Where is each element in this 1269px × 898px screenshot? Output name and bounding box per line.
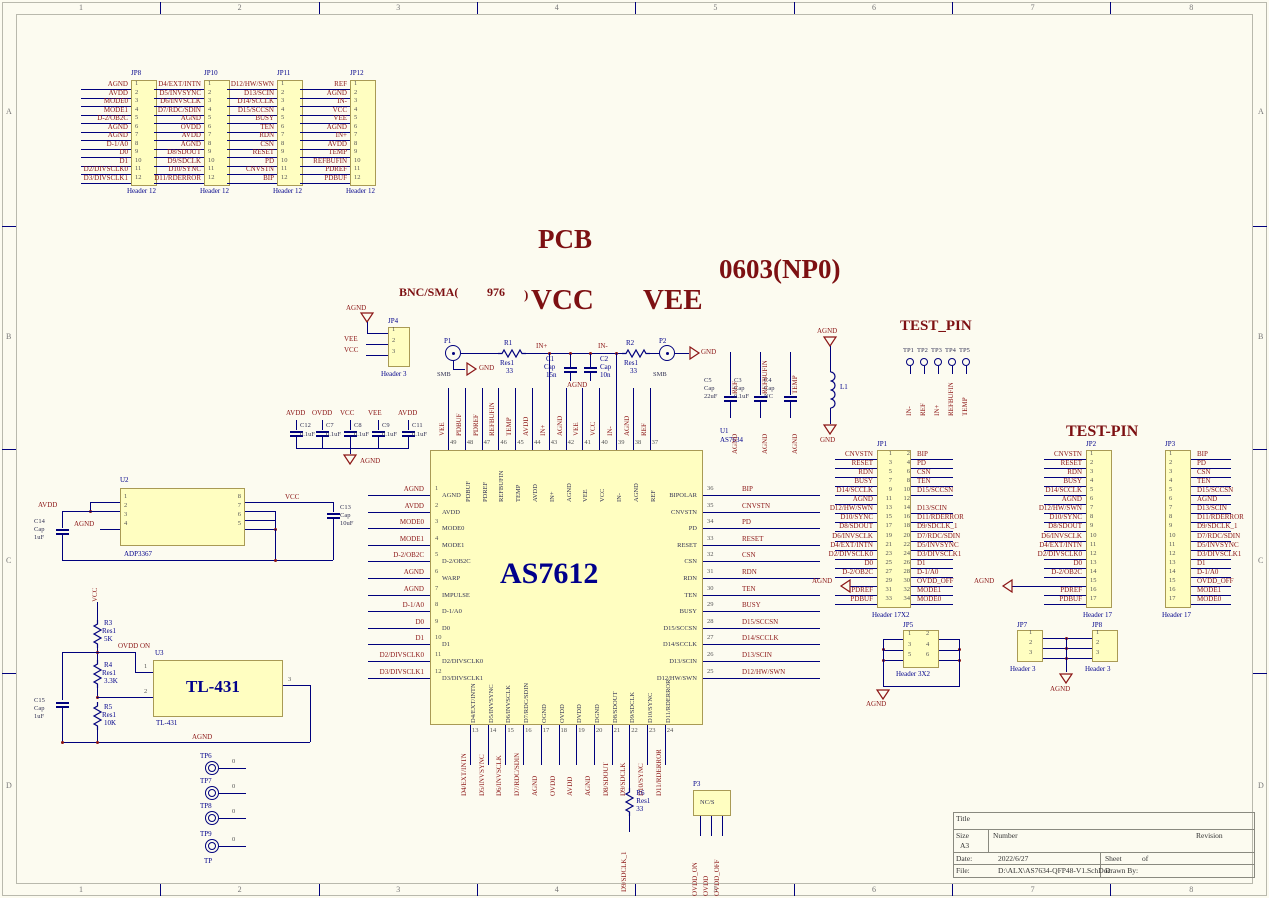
bnc-connector-p1 — [452, 352, 455, 355]
pin-wire — [910, 366, 911, 374]
net-label: D9/SDCLK — [131, 158, 201, 165]
testpoint-designator: TP7 — [200, 778, 212, 785]
pin-number: 9 — [1090, 523, 1093, 530]
pin-name: D13/SCIN — [641, 659, 697, 666]
net-label: IN+ — [934, 376, 941, 416]
pin-name: TEMP — [516, 454, 523, 502]
net-label: D5/INVSYNC — [479, 741, 486, 796]
net-label: D-1/A0 — [364, 602, 424, 609]
pin-wire — [711, 816, 712, 836]
net-label: OVDD ON — [118, 643, 150, 650]
capacitor-designator: C14 — [34, 519, 45, 526]
pin-number: 17 — [881, 523, 892, 530]
connector-type: SMB — [437, 372, 451, 379]
pin-number: 5 — [1169, 487, 1172, 494]
pin-wire — [368, 545, 430, 546]
pin-number: 5 — [1090, 487, 1093, 494]
net-label: D11/RDERROR — [656, 741, 663, 796]
resistor-value: 33 — [630, 368, 637, 375]
net-label: IN- — [598, 343, 608, 350]
pin-number: 1 — [1096, 630, 1099, 637]
net-label: D7/RDC/SDIN — [1197, 533, 1240, 540]
pin-number: 19 — [578, 728, 585, 735]
zone-tick — [319, 884, 320, 896]
vcc-note: VCC — [531, 284, 594, 317]
pin-number: 10 — [1169, 533, 1176, 540]
pin-number: 13 — [472, 728, 479, 735]
testpoint-tp1[interactable] — [906, 358, 914, 366]
capacitor-designator: C7 — [326, 423, 334, 430]
pin-wire — [81, 183, 131, 184]
pin-number: 10 — [899, 487, 910, 494]
pin-wire — [465, 388, 466, 450]
net-label: IN+ — [540, 392, 547, 436]
ic-type: TL-431 — [156, 720, 177, 727]
agnd-symbol[interactable] — [1060, 674, 1072, 683]
pin-number: 1 — [881, 451, 892, 458]
zone-tick — [952, 2, 953, 14]
net-label: VCC — [340, 410, 354, 417]
wire — [378, 420, 379, 430]
pin-name: D15/SCCSN — [641, 626, 697, 633]
resistor-r1[interactable] — [498, 349, 526, 358]
capacitor-value: 0.1uF — [412, 432, 427, 439]
pin-number: 8 — [1169, 514, 1172, 521]
header-designator: JP11 — [277, 70, 290, 77]
net-label: REFBUFIN — [489, 392, 496, 436]
pin-wire — [368, 644, 430, 645]
wire — [830, 346, 831, 372]
bnc-sma-note: BNC/SMA( — [399, 285, 458, 300]
net-label: AVDD — [38, 502, 57, 509]
pin-number: 3 — [908, 642, 911, 649]
net-label: AGND — [866, 701, 886, 708]
net-label: AGND — [364, 569, 424, 576]
inductor-l1[interactable] — [826, 372, 835, 408]
pin-name: PDREF — [483, 454, 490, 502]
net-label: CSN — [742, 552, 756, 559]
pin-number: 43 — [551, 440, 558, 447]
zone-tick — [477, 2, 478, 14]
pin-number: 5 — [435, 552, 438, 559]
titleblock-revision-label: Revision — [1196, 831, 1223, 840]
sheet-zone-label: 8 — [1189, 4, 1193, 12]
wire — [296, 420, 297, 430]
pin-wire — [448, 388, 449, 450]
pin-wire — [245, 520, 275, 521]
net-label: D12/HW/SWN — [742, 669, 785, 676]
net-label: D6/INVSCLK — [496, 741, 503, 796]
bnc-connector-p2 — [666, 352, 669, 355]
net-label: VEE — [573, 392, 580, 436]
test-pin-title: TEST_PIN — [900, 318, 972, 335]
net-label: AVDD — [567, 741, 574, 796]
resistor-r3[interactable] — [93, 620, 102, 648]
pin-wire — [367, 333, 388, 334]
gnd-symbol[interactable] — [467, 363, 476, 375]
wire — [62, 652, 97, 653]
pin-number: 6 — [230, 512, 241, 519]
pin-number: 36 — [707, 486, 714, 493]
agnd-symbol[interactable] — [344, 455, 356, 464]
pin-wire — [1043, 638, 1092, 639]
sheet-zone-label: 1 — [79, 886, 83, 894]
testpoint-tp3[interactable] — [934, 358, 942, 366]
ic-type: ADP3367 — [124, 551, 152, 558]
pin-number: 20 — [899, 533, 910, 540]
net-label: TEMP — [506, 392, 513, 436]
pin-wire — [599, 388, 600, 450]
wire — [62, 708, 63, 742]
pin-number: 12 — [435, 669, 442, 676]
pin-wire — [488, 725, 489, 765]
net-label: D11/RDERROR — [1197, 514, 1244, 521]
net-label: AVDD — [523, 392, 530, 436]
pin-wire — [939, 660, 959, 661]
pin-wire — [576, 725, 577, 765]
net-label: D8/SDOUT — [603, 741, 610, 796]
wire — [296, 437, 297, 448]
pin-number: 2 — [124, 503, 127, 510]
pin-number: 3 — [435, 519, 438, 526]
capacitor-value: 1uF — [34, 714, 44, 721]
net-label: PD — [1197, 460, 1206, 467]
header-designator: JP10 — [204, 70, 218, 77]
header-designator: JP5 — [903, 622, 913, 629]
pin-number: 6 — [1169, 496, 1172, 503]
pin-wire — [368, 528, 430, 529]
pin-number: 10 — [354, 158, 361, 165]
wire — [97, 652, 135, 653]
net-label: AGND — [1050, 686, 1070, 693]
pin-wire — [1191, 604, 1231, 605]
capacitor-value: 15n — [546, 372, 557, 379]
net-label: AGND — [58, 81, 128, 88]
ic-designator: U1 — [720, 428, 729, 435]
connector-designator: P3 — [693, 781, 700, 788]
net-label: RDN — [1010, 469, 1082, 476]
pin-wire — [939, 650, 959, 651]
zone-tick — [1253, 449, 1267, 450]
net-label: AVDD — [286, 410, 305, 417]
capacitor-designator: C3 — [734, 378, 742, 385]
testpoint-tp5[interactable] — [962, 358, 970, 366]
net-label: D10/SYNC — [131, 166, 201, 173]
pin-number: 39 — [618, 440, 625, 447]
zone-tick — [2, 449, 16, 450]
pin-number: 1 — [392, 327, 395, 334]
net-label: MODE0 — [58, 98, 128, 105]
net-label: IN- — [277, 98, 347, 105]
net-label: D8/SDOUT — [803, 523, 873, 530]
net-label: D3/DIVSCLK1 — [58, 175, 128, 182]
pin-wire — [368, 561, 430, 562]
header-type: Header 3X2 — [896, 671, 930, 678]
pin-number: 31 — [881, 587, 892, 594]
pin-wire — [665, 725, 666, 765]
pin-wire — [835, 604, 877, 605]
pin-number: 1 — [908, 631, 911, 638]
pin-number: 28 — [899, 569, 910, 576]
pin-number: 0 — [232, 759, 235, 766]
pin-number: 7 — [1090, 505, 1093, 512]
wire — [135, 652, 136, 672]
pin-number: 8 — [435, 602, 438, 609]
jumper-value: NC/S — [700, 800, 714, 807]
pin-number: 7 — [354, 132, 357, 139]
pin-wire — [566, 388, 567, 450]
pin-wire — [939, 639, 959, 640]
header-designator: JP3 — [1165, 441, 1175, 448]
wire — [62, 560, 333, 561]
net-label: OVDD — [312, 410, 332, 417]
testpoint-type: TP — [204, 858, 212, 865]
resistor-r4[interactable] — [93, 660, 102, 688]
pin-number: 7 — [230, 503, 241, 510]
net-label: RESET — [204, 149, 274, 156]
wire — [1066, 638, 1067, 672]
pin-number: 25 — [707, 669, 714, 676]
pin-number: 44 — [534, 440, 541, 447]
pin-wire — [100, 529, 120, 530]
header-designator: JP1 — [877, 441, 887, 448]
testpoint-designator: TP1 — [903, 348, 914, 355]
wire — [760, 402, 761, 418]
pin-number: 16 — [1090, 587, 1097, 594]
pin-number: 45 — [517, 440, 524, 447]
capacitor-value: NC — [764, 394, 773, 401]
pin-number: 15 — [881, 514, 892, 521]
net-label: PD — [204, 158, 274, 165]
pin-wire — [368, 595, 430, 596]
pin-number: 1 — [354, 81, 357, 88]
net-label: BUSY — [803, 478, 873, 485]
pin-number: 24 — [667, 728, 674, 735]
net-label: D1 — [58, 158, 128, 165]
pin-wire — [938, 366, 939, 374]
capacitor-designator: C13 — [340, 505, 351, 512]
pin-number: 8 — [354, 141, 357, 148]
capacitor-value: 22uF — [704, 394, 717, 401]
wire — [333, 519, 334, 560]
pin-number: 42 — [568, 440, 575, 447]
pin-wire — [368, 495, 430, 496]
connector-type: SMB — [653, 372, 667, 379]
pin-name: AVDD — [533, 454, 540, 502]
header-type: Header 12 — [127, 188, 156, 195]
titleblock-title-label: Title — [956, 814, 970, 823]
net-label: D7/RDC/SDIN — [917, 533, 960, 540]
capacitor-designator: C11 — [412, 423, 423, 430]
net-label: OVDD_OFF — [714, 838, 721, 896]
zone-tick — [635, 2, 636, 14]
wire — [790, 352, 791, 395]
titleblock-date-label: Date: — [956, 854, 972, 863]
agnd-symbol[interactable] — [877, 690, 889, 699]
pin-name: D-2/OB2C — [442, 559, 471, 566]
pin-number: 4 — [1090, 478, 1093, 485]
pin-number: 6 — [1090, 496, 1093, 503]
agnd-symbol[interactable] — [824, 337, 836, 346]
pin-wire — [515, 388, 516, 450]
pin-number: 23 — [881, 551, 892, 558]
net-label: VCC — [277, 107, 347, 114]
wire — [310, 685, 311, 742]
pin-name: AVDD — [442, 510, 460, 517]
header-type: Header 17X2 — [872, 612, 910, 619]
net-label: CNVSTN — [803, 451, 873, 458]
net-label: VCC — [344, 347, 358, 354]
net-label: D4/EXT/INTN — [461, 741, 468, 796]
net-label: MODE0 — [917, 596, 941, 603]
header-type: Header 3 — [1010, 666, 1035, 673]
schematic-sheet: PCB BNC/SMA( 976 ) VCC VEE 0603(NP0) TES… — [0, 0, 1269, 898]
wire — [830, 408, 831, 424]
pin-wire — [911, 604, 953, 605]
resistor-r5[interactable] — [93, 702, 102, 730]
pin-wire — [90, 502, 120, 503]
resistor-r6[interactable] — [625, 788, 634, 816]
net-label: AGND — [792, 420, 799, 454]
net-label: D8/SDOUT — [1010, 523, 1082, 530]
agnd-symbol[interactable] — [361, 313, 373, 322]
pin-number: 25 — [881, 560, 892, 567]
net-label: CSN — [204, 141, 274, 148]
net-label: AGND — [762, 420, 769, 454]
gnd-symbol[interactable] — [824, 425, 836, 434]
pin-wire — [482, 388, 483, 450]
net-label: VEE — [344, 336, 358, 343]
net-label: AGND — [803, 496, 873, 503]
titleblock-size-value: A3 — [960, 841, 969, 850]
pin-number: 28 — [707, 619, 714, 626]
pin-number: 6 — [354, 124, 357, 131]
pin-number: 2 — [1090, 460, 1093, 467]
wire — [97, 602, 98, 620]
gnd-symbol[interactable] — [690, 347, 699, 359]
pin-number: 32 — [707, 552, 714, 559]
pin-name: D4/EXT/INTN — [471, 676, 478, 723]
ic-adp3367[interactable] — [120, 488, 245, 546]
pin-wire — [703, 678, 820, 679]
capacitor-c15 — [56, 702, 69, 704]
pin-number: 11 — [1090, 542, 1096, 549]
pin-number: 30 — [707, 586, 714, 593]
net-label: D10/SYNC — [638, 741, 645, 796]
net-label: AVDD — [398, 410, 417, 417]
capacitor-c13 — [327, 513, 340, 515]
pin-number: 16 — [899, 514, 910, 521]
zone-tick — [160, 884, 161, 896]
net-label: AGND — [624, 392, 631, 436]
pin-name: PD — [641, 526, 697, 533]
pin-wire — [594, 725, 595, 765]
capacitor-designator: C9 — [382, 423, 390, 430]
zone-tick — [319, 2, 320, 14]
pin-number: 14 — [490, 728, 497, 735]
pin-number: 2 — [144, 689, 147, 696]
pin-wire — [616, 353, 617, 450]
pin-number: 21 — [881, 542, 892, 549]
testpoint-tp8 — [208, 814, 216, 822]
net-label: D-2/OB2C — [1010, 569, 1082, 576]
pin-number: 0 — [232, 837, 235, 844]
net-label: D13/SCIN — [742, 652, 772, 659]
sheet-zone-label: A — [6, 108, 12, 116]
net-label: MODE1 — [58, 107, 128, 114]
pin-number: 3 — [1096, 650, 1099, 657]
wire — [461, 353, 498, 354]
testpoint-tp2[interactable] — [920, 358, 928, 366]
testpoint-tp4[interactable] — [948, 358, 956, 366]
net-label: AGND — [346, 305, 366, 312]
pin-wire — [650, 388, 651, 450]
net-label: AGND — [585, 741, 592, 796]
net-label: D5/INVSYNC — [1197, 542, 1239, 549]
pin-wire — [722, 816, 723, 836]
pin-number: 30 — [899, 578, 910, 585]
net-label: D14/SCCLK — [1010, 487, 1082, 494]
net-label: BIP — [917, 451, 928, 458]
pin-number: 15 — [1169, 578, 1176, 585]
pin-wire — [911, 495, 953, 496]
pin-number: 7 — [435, 586, 438, 593]
pin-wire — [1044, 577, 1086, 578]
net-label: D13/SCIN — [204, 90, 274, 97]
pin-number: 11 — [435, 652, 441, 659]
wire — [730, 352, 731, 395]
wire — [526, 353, 622, 354]
titleblock-sheet-label: Sheet — [1105, 854, 1122, 863]
pin-number: 17 — [1169, 596, 1176, 603]
pin-number: 20 — [596, 728, 603, 735]
sheet-zone-label: 2 — [238, 886, 242, 894]
net-label: BUSY — [1010, 478, 1082, 485]
bnc-sma-number: 976 — [487, 285, 505, 300]
pin-number: 0 — [232, 784, 235, 791]
pin-number: 3 — [288, 677, 291, 684]
capacitor-designator: C8 — [354, 423, 362, 430]
net-label: OVDD_ON — [692, 838, 699, 896]
pin-wire — [559, 725, 560, 765]
pin-name: WARP — [442, 576, 460, 583]
net-label: D9/SDCLK_1 — [1197, 523, 1237, 530]
pin-wire — [647, 725, 648, 765]
resistor-r2[interactable] — [622, 349, 650, 358]
pin-number: 1 — [1169, 451, 1172, 458]
capacitor-value: 10uF — [340, 521, 353, 528]
net-label: D2/DIVSCLK0 — [1010, 551, 1082, 558]
pin-wire — [154, 183, 204, 184]
pin-number: 3 — [1090, 469, 1093, 476]
net-label: IN+ — [536, 343, 547, 350]
zone-tick — [635, 884, 636, 896]
net-label: AGND — [131, 115, 201, 122]
net-label: IN+ — [277, 132, 347, 139]
zone-tick — [794, 2, 795, 14]
pin-number: 3 — [1029, 650, 1032, 657]
pin-name: CSN — [641, 559, 697, 566]
pin-number: 2 — [899, 451, 910, 458]
pin-number: 17 — [1090, 596, 1097, 603]
testpoint-designator: TP6 — [200, 753, 212, 760]
pin-wire — [629, 816, 630, 832]
header-type: Header 12 — [346, 188, 375, 195]
header-type: Header 3 — [381, 371, 406, 378]
net-label: IN- — [607, 392, 614, 436]
net-label: AGND — [812, 578, 832, 585]
pin-wire — [227, 183, 277, 184]
